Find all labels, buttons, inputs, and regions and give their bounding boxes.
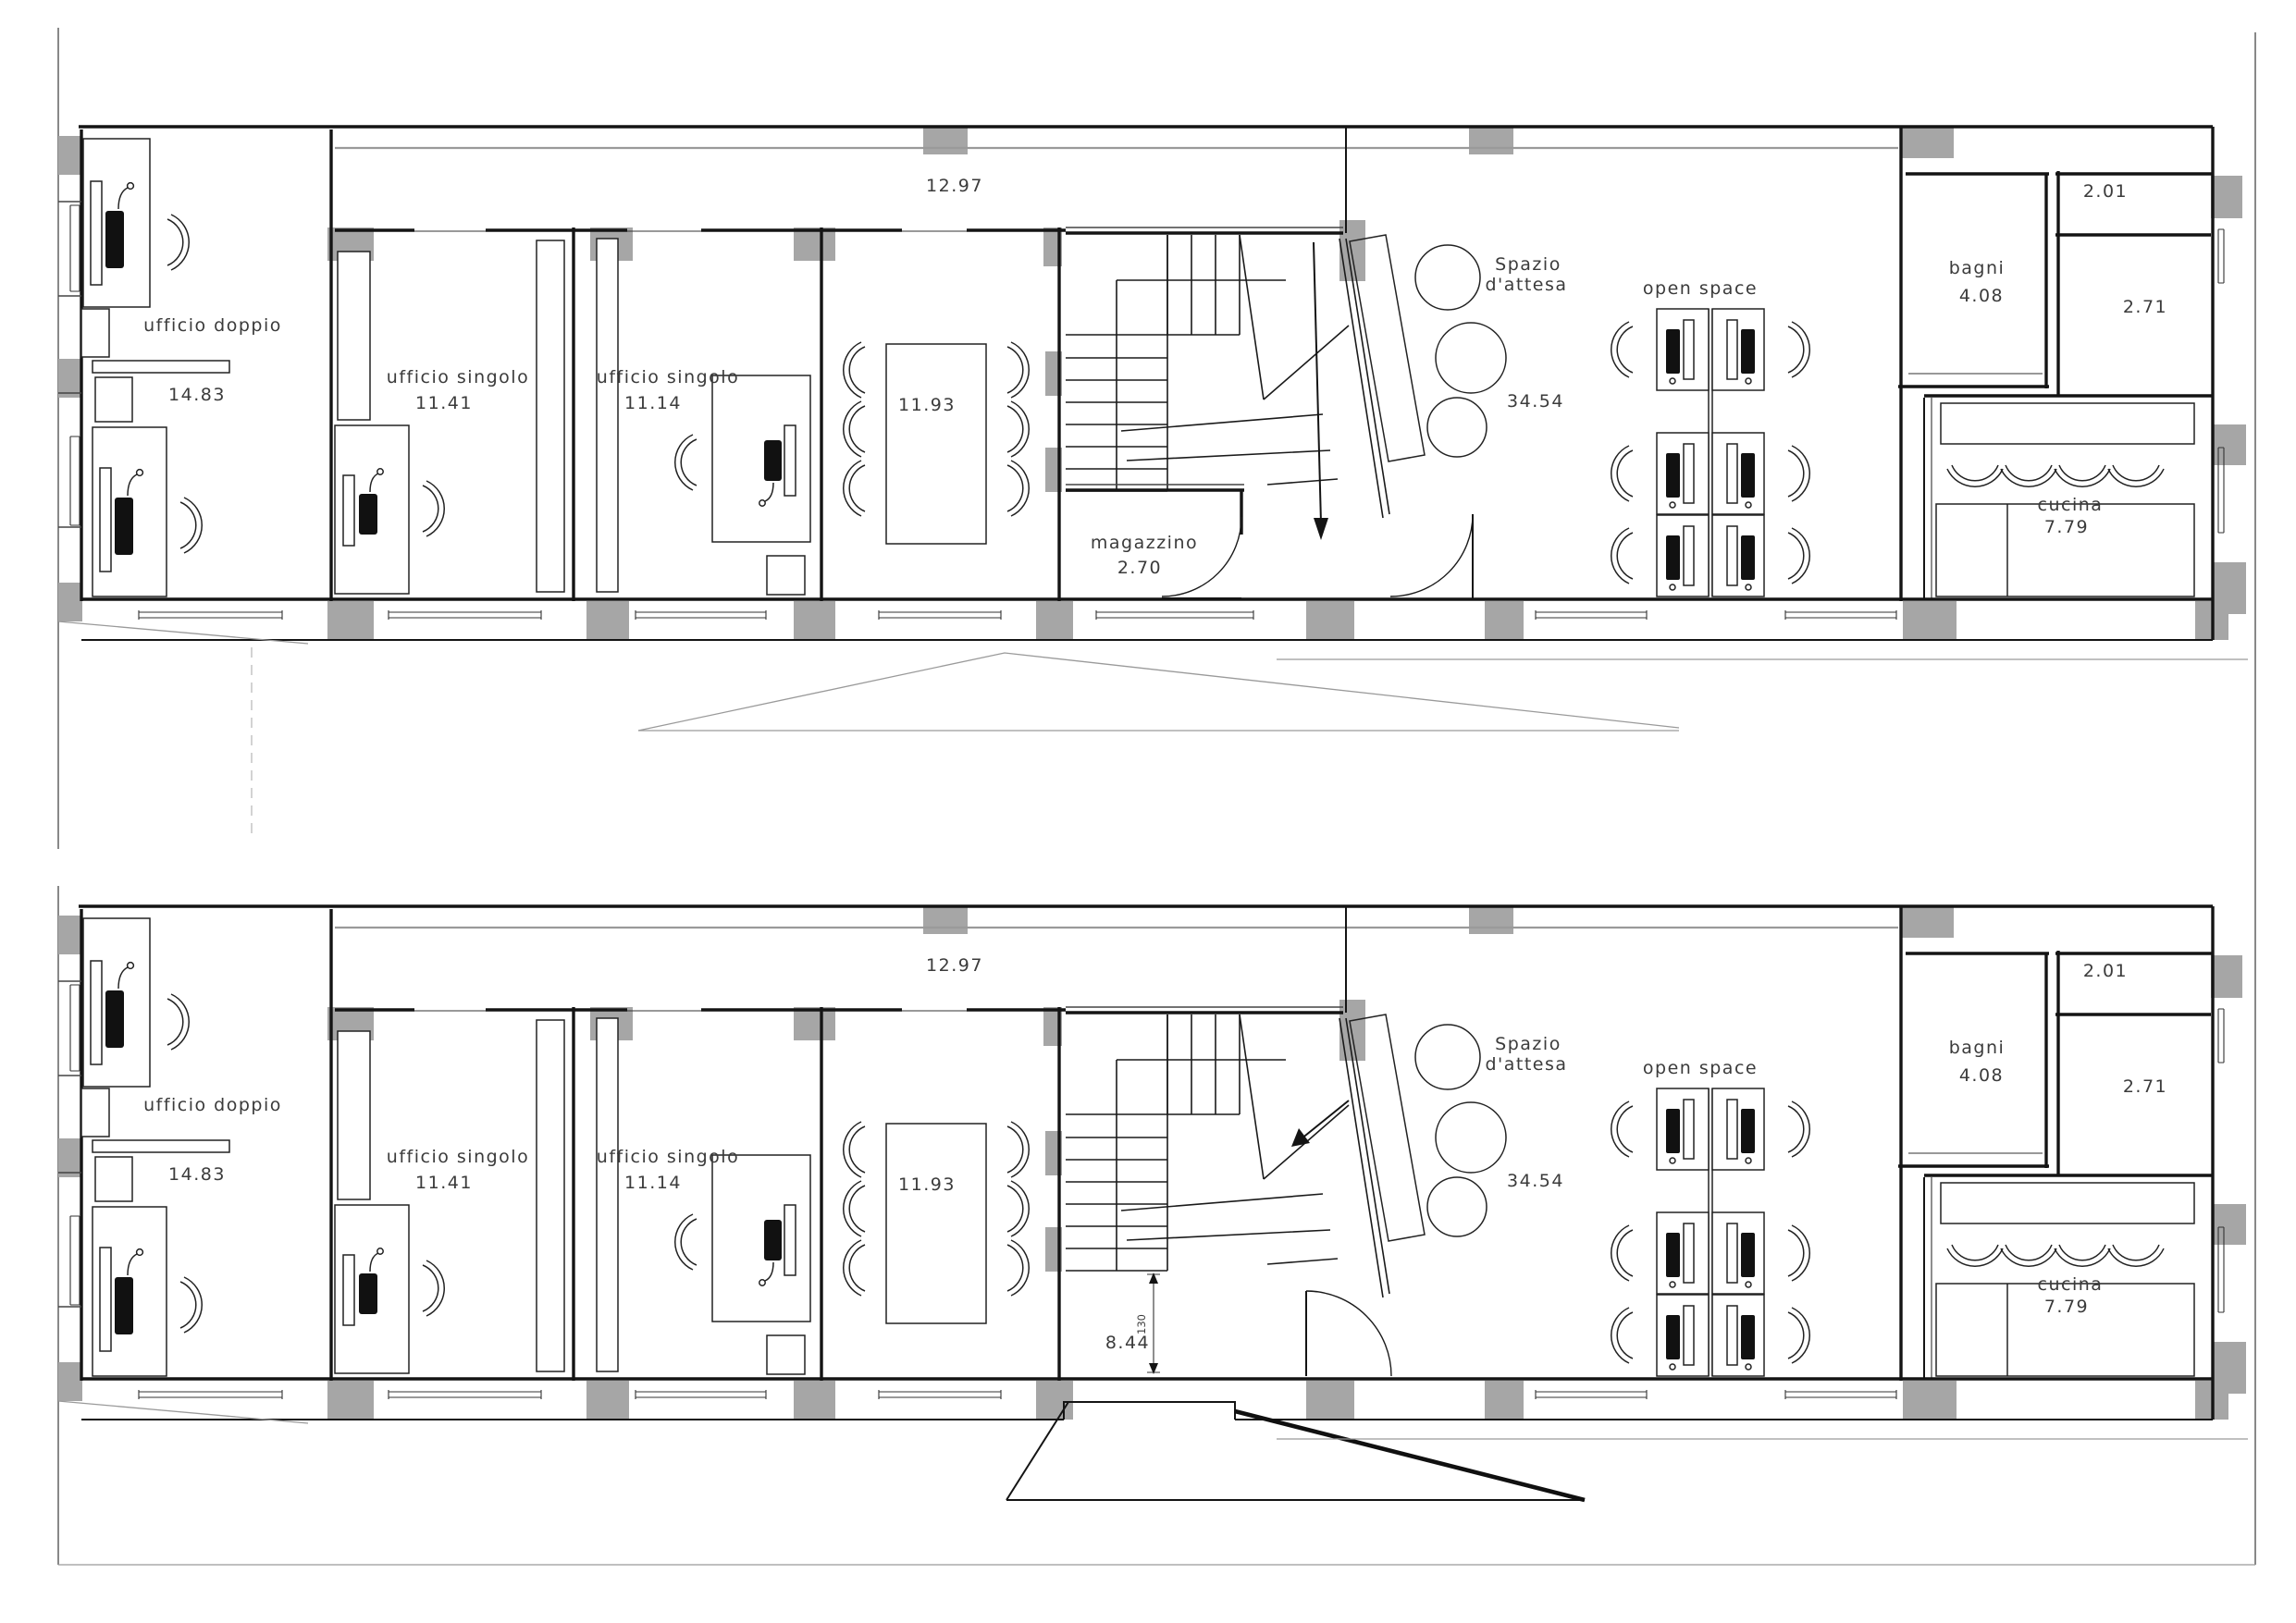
dimension-130: 130 <box>1135 1314 1148 1334</box>
stair-exit-door-lower <box>1306 1291 1391 1376</box>
label-magazzino: magazzino <box>1091 533 1198 553</box>
area-magazzino: 2.70 <box>1117 558 1162 578</box>
magazzino-door-arc <box>1162 517 1241 596</box>
stair-direction-arrow-upper <box>1314 242 1328 540</box>
floor-lower-base <box>58 906 2246 1420</box>
floor-plan-lower: 130 8.44 <box>58 906 2248 1500</box>
magazzino-room: magazzino 2.70 <box>1066 485 1244 598</box>
floor-plan-document: ufficio doppio 14.83 ufficio singolo 11.… <box>0 0 2296 1623</box>
stair-dimension-lower: 130 8.44 <box>1105 1273 1160 1374</box>
floor-plans-canvas: ufficio doppio 14.83 ufficio singolo 11.… <box>0 0 2296 1623</box>
area-stair-hall: 8.44 <box>1105 1333 1150 1353</box>
stair-exit-door-upper <box>1390 514 1473 599</box>
floor-plan-upper: magazzino 2.70 <box>58 127 2248 731</box>
stair-direction-arrow-lower <box>1291 1100 1349 1147</box>
